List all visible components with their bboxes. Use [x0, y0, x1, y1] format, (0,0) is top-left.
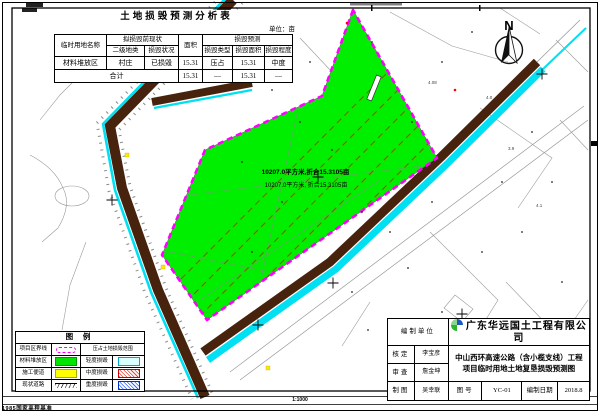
haul-road-swatch — [55, 369, 77, 378]
cell-total-darea: 15.31 — [233, 70, 265, 83]
spot-label: 4.08 — [428, 80, 437, 85]
col-header-name: 临时用地名称 — [55, 35, 107, 57]
project-title-line2: 项目临时用地土地复垦损毁预测图 — [449, 363, 589, 375]
cell-name: 材料堆放区 — [55, 57, 107, 70]
legend-row: 施工便道 中度损毁 — [16, 368, 145, 380]
cell-total-type: — — [203, 70, 233, 83]
legend-label: 项目区界线 — [16, 344, 52, 356]
light-damage-swatch — [118, 357, 140, 366]
col-header-darea: 损毁面积 — [233, 46, 265, 57]
company-logo-icon — [451, 319, 463, 333]
cell-total-label: 合计 — [55, 70, 179, 83]
compile-date: 2018.8 — [558, 381, 590, 400]
approve-label: 核定 — [388, 345, 415, 363]
stockpile-swatch — [55, 357, 77, 366]
approver-name: 李宝彦 — [414, 345, 448, 363]
cell-darea: 15.31 — [233, 57, 265, 70]
legend-label: 中度损毁 — [81, 368, 113, 380]
area-annotation: 10207.0平方米, 折合15.3105亩 — [236, 180, 376, 189]
boundary-swatch — [56, 347, 76, 353]
datum-note: 1985国家高程基准 — [2, 404, 52, 412]
legend-label: 轻度损毁 — [81, 356, 113, 368]
cell-total-degree: — — [265, 70, 293, 83]
legend-label: 压占土地损毁范围 — [81, 344, 145, 356]
cell-area: 15.31 — [179, 57, 203, 70]
drafter-name: 吴幸联 — [414, 381, 448, 400]
spot-label: 4.0 — [486, 95, 493, 100]
date-label: 编制日期 — [522, 381, 558, 400]
heavy-damage-swatch — [118, 381, 140, 390]
legend: 图 例 项目区界线 压占土地损毁范围 材料堆放区 轻度损毁 施工便道 中度损毁 … — [15, 331, 145, 392]
cell-type: 压占 — [203, 57, 233, 70]
legend-label: 施工便道 — [16, 368, 52, 380]
cell-degree: 中度 — [265, 57, 293, 70]
col-header-pred: 损毁预测 — [203, 35, 293, 46]
col-header-type: 损毁类型 — [203, 46, 233, 57]
col-header-area: 面积 — [179, 35, 203, 57]
scale-note: 1:1000 — [270, 397, 330, 403]
table-row: 材料堆放区 村庄 已损毁 15.31 压占 15.31 中度 — [55, 57, 293, 70]
spot-label: 4.1 — [536, 203, 543, 208]
legend-label: 重度损毁 — [81, 380, 113, 392]
spot-label: 3.9 — [508, 146, 515, 151]
table-title: 土地损毁预测分析表 — [54, 10, 299, 25]
legend-row: 材料堆放区 轻度损毁 — [16, 356, 145, 368]
medium-damage-swatch — [118, 369, 140, 378]
legend-row: 现状道路 重度损毁 — [16, 380, 145, 392]
table-total-row: 合计 15.31 — 15.31 — — [55, 70, 293, 83]
legend-row: 项目区界线 压占土地损毁范围 — [16, 344, 145, 356]
review-label: 审查 — [388, 363, 415, 381]
north-label: N — [504, 18, 513, 33]
project-title: 中山西环高速公路（含小榄支线）工程 项目临时用地土地复垦损毁预测图 — [448, 345, 589, 381]
existing-road-swatch — [55, 383, 77, 388]
col-header-degree: 损毁程度 — [265, 46, 293, 57]
damage-prediction-table: 土地损毁预测分析表 单位：亩 临时用地名称 拟损毁前现状 面积 损毁预测 二级地… — [54, 10, 299, 83]
col-header-pre: 拟损毁前现状 — [107, 35, 179, 46]
drawing-sheet: 4.08 4.0 3.9 4.1 N 土地损毁预测分析表 单位：亩 — [0, 0, 600, 413]
title-block: 编制单位 广东华远国土工程有限公司 核定 李宝彦 中山西环高速公路（含小榄支线）… — [387, 318, 590, 401]
org-label: 编制单位 — [388, 319, 449, 346]
col-header-status: 损毁状况 — [145, 46, 179, 57]
figure-no-label: 图号 — [448, 381, 482, 400]
project-title-line1: 中山西环高速公路（含小榄支线）工程 — [449, 352, 589, 364]
table-unit-note: 单位：亩 — [54, 25, 299, 34]
area-annotation-bold: 10207.0平方米,折合15.3105亩 — [243, 166, 368, 176]
col-header-class: 二级地类 — [107, 46, 145, 57]
cell-class: 村庄 — [107, 57, 145, 70]
company-name: 广东华远国土工程有限公司 — [466, 321, 587, 344]
cell-status: 已损毁 — [145, 57, 179, 70]
legend-label: 现状道路 — [16, 380, 52, 392]
north-arrow: N — [496, 18, 523, 64]
reviewer-name: 詹金坤 — [414, 363, 448, 381]
draft-label: 制图 — [388, 381, 415, 400]
cell-total-area: 15.31 — [179, 70, 203, 83]
legend-label: 材料堆放区 — [16, 356, 52, 368]
legend-title: 图 例 — [16, 332, 145, 344]
figure-no: YC-01 — [482, 381, 522, 400]
